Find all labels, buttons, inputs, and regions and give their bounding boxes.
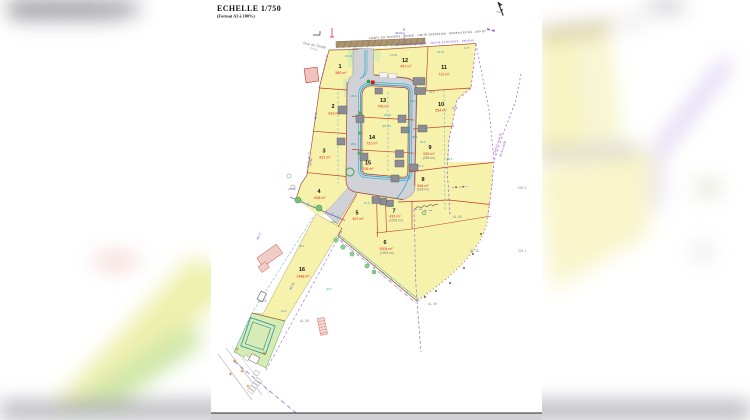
svg-text:16: 16 <box>299 267 305 273</box>
svg-text:200 1: 200 1 <box>518 186 527 190</box>
svg-text:812 m²: 812 m² <box>319 156 331 160</box>
svg-text:407 m²: 407 m² <box>352 217 364 221</box>
svg-text:457 m²: 457 m² <box>400 65 412 69</box>
svg-text:3: 3 <box>322 149 325 155</box>
svg-text:3.50: 3.50 <box>388 204 394 208</box>
svg-text:13: 13 <box>380 98 386 104</box>
svg-text:9.77: 9.77 <box>464 46 470 50</box>
svg-text:25.4: 25.4 <box>351 94 357 98</box>
svg-text:1: 1 <box>338 64 341 70</box>
svg-text:654 m²: 654 m² <box>435 109 447 113</box>
svg-text:40.1: 40.1 <box>299 244 305 248</box>
svg-text:14: 14 <box>369 135 376 141</box>
svg-text:AL 45: AL 45 <box>470 249 479 253</box>
svg-text:16.9: 16.9 <box>331 220 337 224</box>
svg-text:46.02: 46.02 <box>395 31 403 35</box>
svg-text:28.4: 28.4 <box>447 157 453 161</box>
svg-text:201 1: 201 1 <box>518 249 527 253</box>
svg-text:14.50: 14.50 <box>390 53 397 57</box>
svg-text:AL 49: AL 49 <box>428 302 437 306</box>
svg-text:(1005 m²): (1005 m²) <box>389 219 403 223</box>
svg-text:23.10: 23.10 <box>437 50 444 54</box>
svg-text:26.0: 26.0 <box>411 99 417 103</box>
svg-text:24.6: 24.6 <box>429 90 435 94</box>
svg-text:580 m²: 580 m² <box>335 71 347 75</box>
svg-text:8: 8 <box>421 177 424 183</box>
svg-text:1488 m²: 1488 m² <box>296 275 310 279</box>
svg-text:9: 9 <box>428 145 431 151</box>
svg-text:11: 11 <box>441 65 447 71</box>
svg-text:23.2: 23.2 <box>420 140 426 144</box>
svg-text:19.00: 19.00 <box>345 54 352 58</box>
svg-text:AL 36: AL 36 <box>300 319 309 323</box>
svg-text:638 m²: 638 m² <box>314 196 326 200</box>
svg-text:25.40: 25.40 <box>384 113 391 117</box>
svg-text:12: 12 <box>402 58 408 64</box>
svg-text:712 m²: 712 m² <box>438 73 450 77</box>
svg-text:2: 2 <box>331 104 334 110</box>
svg-text:5: 5 <box>355 211 358 217</box>
svg-text:10: 10 <box>438 102 444 108</box>
svg-text:(618 m²): (618 m²) <box>417 188 429 192</box>
svg-text:(24.40): (24.40) <box>382 124 391 128</box>
svg-text:706 m²: 706 m² <box>377 105 389 109</box>
svg-text:25.1: 25.1 <box>351 142 357 146</box>
svg-text:6: 6 <box>383 240 386 246</box>
svg-text:41.6: 41.6 <box>281 309 287 313</box>
svg-text:AL 50: AL 50 <box>453 215 462 219</box>
svg-text:21.9: 21.9 <box>418 164 424 168</box>
svg-text:42.3: 42.3 <box>326 287 332 291</box>
svg-text:706 m²: 706 m² <box>362 167 374 171</box>
svg-text:723 m²: 723 m² <box>366 142 378 146</box>
svg-text:15: 15 <box>365 161 371 167</box>
svg-text:(Format A3 à 100%): (Format A3 à 100%) <box>217 14 255 19</box>
svg-text:(1005 m²): (1005 m²) <box>380 251 394 255</box>
svg-text:25.0: 25.0 <box>412 135 418 139</box>
svg-text:30.8: 30.8 <box>452 106 458 110</box>
svg-text:813 m²: 813 m² <box>328 112 340 116</box>
svg-text:10.0: 10.0 <box>364 201 370 205</box>
svg-text:43.26: 43.26 <box>288 187 296 191</box>
svg-text:ECHELLE 1/750: ECHELLE 1/750 <box>217 4 281 13</box>
svg-text:(306 m²): (306 m²) <box>423 156 435 160</box>
